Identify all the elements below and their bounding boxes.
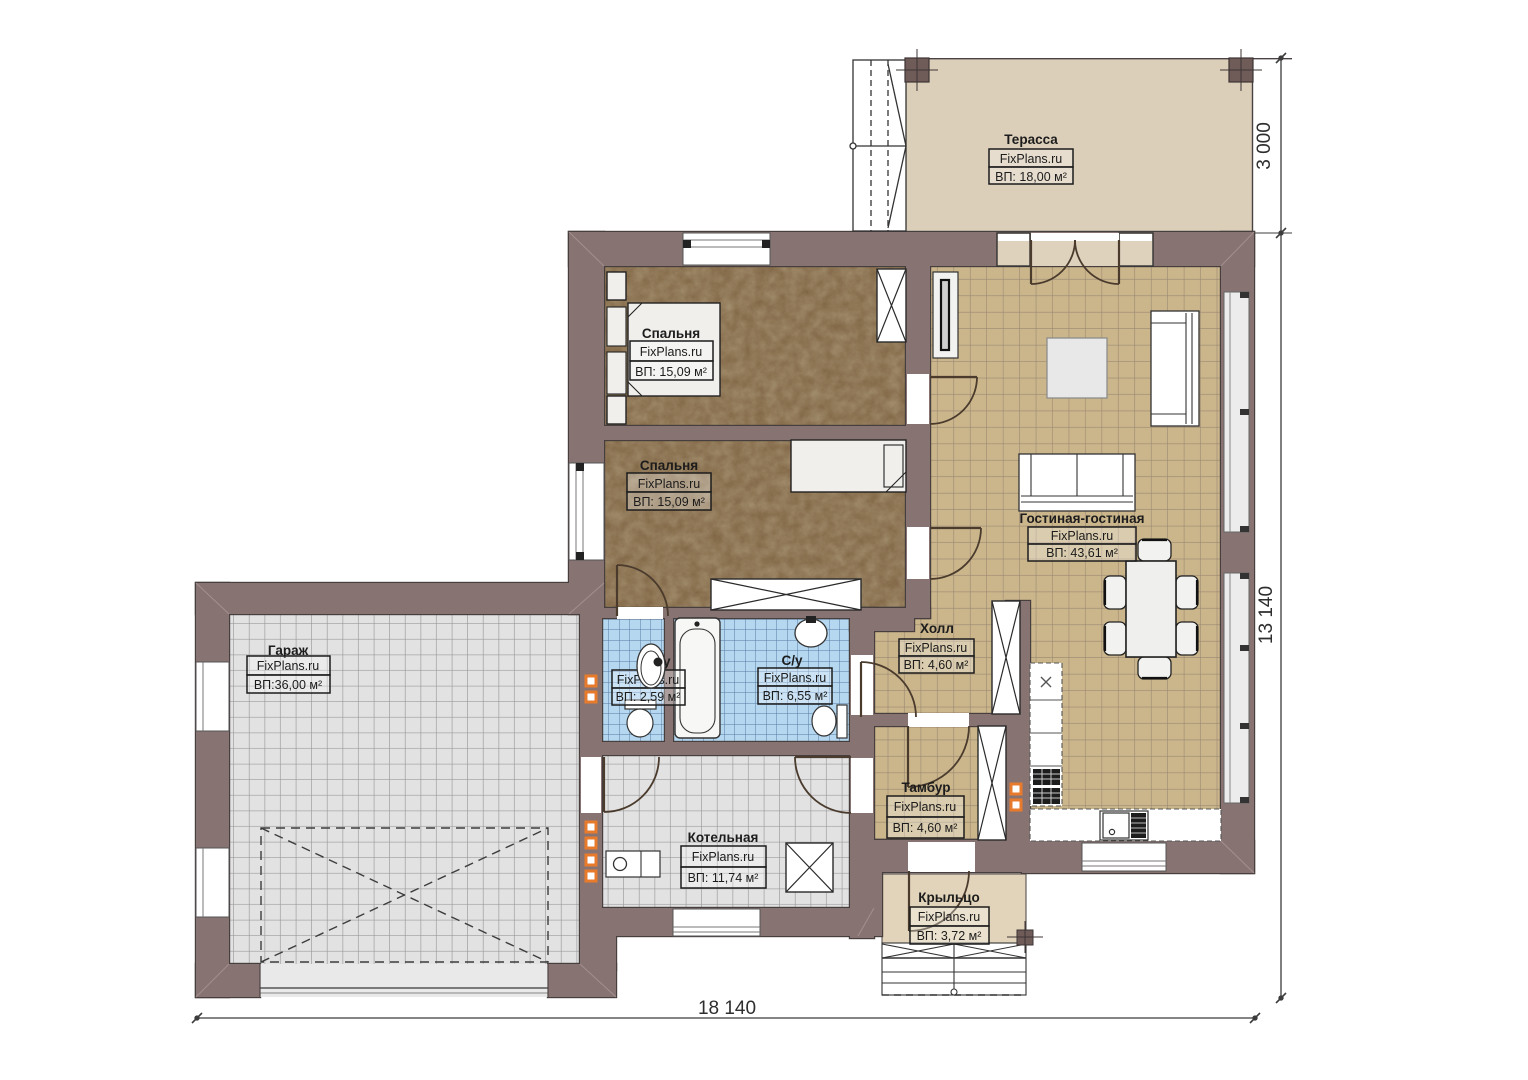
svg-text:ВП: 18,00 м²: ВП: 18,00 м²	[995, 170, 1067, 184]
svg-text:FixPlans.ru: FixPlans.ru	[692, 850, 755, 864]
svg-text:Холл: Холл	[920, 621, 954, 636]
svg-text:ВП: 11,74 м²: ВП: 11,74 м²	[688, 871, 759, 885]
svg-text:FixPlans.ru: FixPlans.ru	[1000, 152, 1063, 166]
svg-text:FixPlans.ru: FixPlans.ru	[638, 477, 701, 491]
svg-text:FixPlans.ru: FixPlans.ru	[1051, 529, 1114, 543]
svg-text:Спальня: Спальня	[642, 326, 700, 341]
svg-text:18 140: 18 140	[698, 998, 756, 1019]
svg-text:ВП: 15,09 м²: ВП: 15,09 м²	[633, 495, 705, 509]
svg-text:FixPlans.ru: FixPlans.ru	[640, 345, 703, 359]
svg-text:FixPlans.ru: FixPlans.ru	[905, 641, 968, 655]
svg-text:Крыльцо: Крыльцо	[918, 890, 979, 905]
svg-text:ВП: 3,72 м²: ВП: 3,72 м²	[917, 929, 982, 943]
svg-text:3 000: 3 000	[1254, 122, 1275, 170]
svg-text:Терасса: Терасса	[1004, 132, 1058, 147]
svg-text:FixPlans.ru: FixPlans.ru	[894, 800, 957, 814]
svg-text:Котельная: Котельная	[688, 830, 759, 845]
svg-text:Спальня: Спальня	[640, 458, 698, 473]
svg-text:ВП: 6,55 м²: ВП: 6,55 м²	[763, 689, 828, 703]
svg-text:Гостиная-гостиная: Гостиная-гостиная	[1020, 511, 1145, 526]
svg-text:С/у: С/у	[781, 653, 803, 668]
svg-text:ВП: 4,60 м²: ВП: 4,60 м²	[904, 658, 969, 672]
svg-text:ВП:36,00 м²: ВП:36,00 м²	[254, 678, 322, 692]
svg-text:13 140: 13 140	[1256, 586, 1277, 644]
svg-text:FixPlans.ru: FixPlans.ru	[918, 910, 981, 924]
svg-text:ВП: 15,09 м²: ВП: 15,09 м²	[635, 365, 707, 379]
svg-text:ВП: 4,60 м²: ВП: 4,60 м²	[893, 821, 958, 835]
svg-text:FixPlans.ru: FixPlans.ru	[257, 659, 320, 673]
svg-text:ВП: 2,59 м²: ВП: 2,59 м²	[616, 690, 681, 704]
svg-text:Тамбур: Тамбур	[902, 780, 951, 795]
svg-text:ВП: 43,61 м²: ВП: 43,61 м²	[1046, 546, 1118, 560]
svg-text:FixPlans.ru: FixPlans.ru	[764, 671, 827, 685]
